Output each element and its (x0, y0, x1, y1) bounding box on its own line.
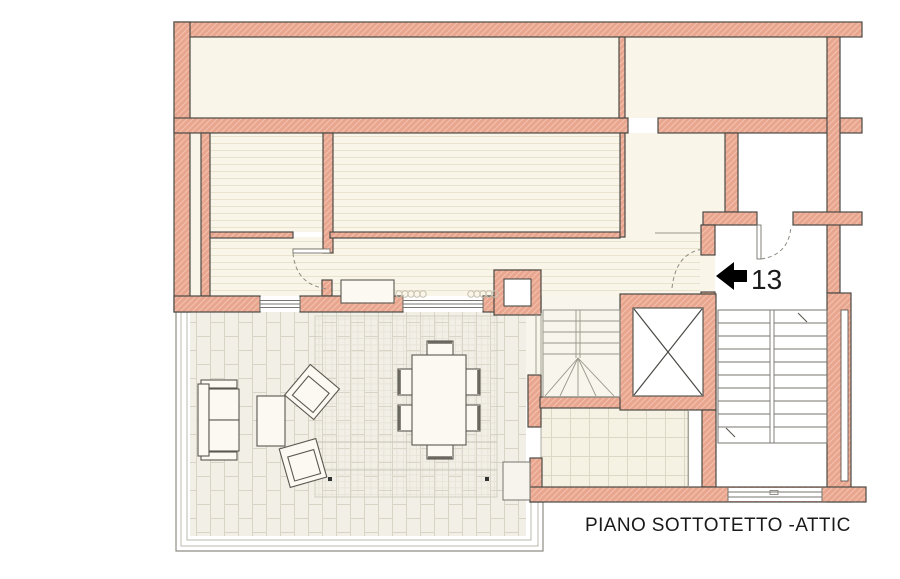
floor-plan: 13 PIANO SOTTOTETTO -ATTIC (0, 0, 900, 579)
room-top-left (190, 37, 619, 118)
service-shaft (688, 410, 702, 487)
sideboard (341, 280, 394, 303)
wall-vestibule-left (725, 133, 738, 212)
duct-inner (504, 279, 531, 306)
wall-entry-upper (701, 225, 715, 255)
plan-caption: PIANO SOTTOTETTO -ATTIC (585, 515, 851, 536)
room-attic-b (333, 133, 620, 232)
floor-plan-drawing: 13 PIANO SOTTOTETTO -ATTIC (0, 0, 900, 579)
wall-closet (201, 133, 210, 296)
wall-south-a (174, 296, 260, 312)
closet-strip (190, 133, 201, 296)
wall-landing-right (793, 212, 862, 225)
wall-thin-horizontal-b (330, 232, 620, 238)
inner-stair-area (541, 296, 620, 397)
terrace-pillar (503, 462, 530, 500)
room-attic-lower (210, 237, 700, 296)
wall-landing-left (703, 212, 757, 225)
wall-divider-left (174, 118, 628, 133)
coffee-table (257, 396, 285, 446)
elevator (633, 308, 703, 396)
wall-right-upper (827, 37, 840, 293)
wall-thin-horizontal-a (210, 232, 293, 238)
unit-number: 13 (751, 264, 782, 295)
room-attic-a (210, 133, 323, 232)
wall-left (174, 22, 190, 312)
window-b (403, 297, 483, 311)
room-top-right (624, 37, 827, 118)
stair-vestibule (738, 133, 827, 212)
window-a (260, 297, 300, 311)
fixing-dot (485, 477, 489, 481)
wall-bath-left (528, 375, 541, 427)
stair-center-rail (770, 310, 774, 443)
wall-stairwell-left (702, 410, 716, 487)
window-stairwell (728, 488, 822, 501)
dining-table (412, 355, 466, 445)
wall-slot-window (841, 310, 848, 481)
bathroom (541, 408, 688, 487)
wall-stair-bottom (540, 397, 623, 408)
sofa (198, 380, 239, 460)
wall-thin-topband (619, 37, 625, 118)
wall-top (174, 22, 862, 37)
fixing-dot (328, 477, 332, 481)
wall-thin-hall (620, 133, 625, 237)
